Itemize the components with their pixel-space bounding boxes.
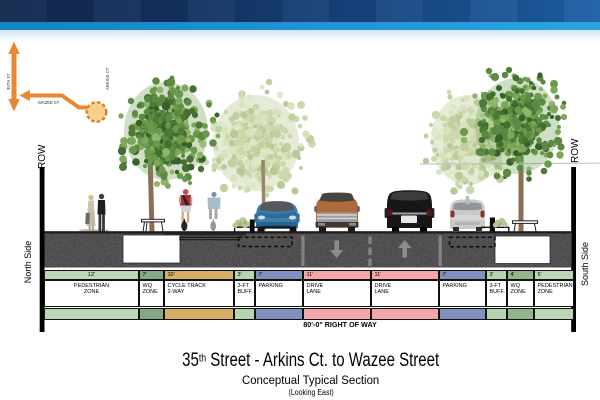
svg-text:ARKINS CT: ARKINS CT bbox=[105, 67, 110, 90]
svg-text:WAZEE ST: WAZEE ST bbox=[38, 100, 60, 105]
svg-text:35TH ST: 35TH ST bbox=[6, 73, 11, 90]
